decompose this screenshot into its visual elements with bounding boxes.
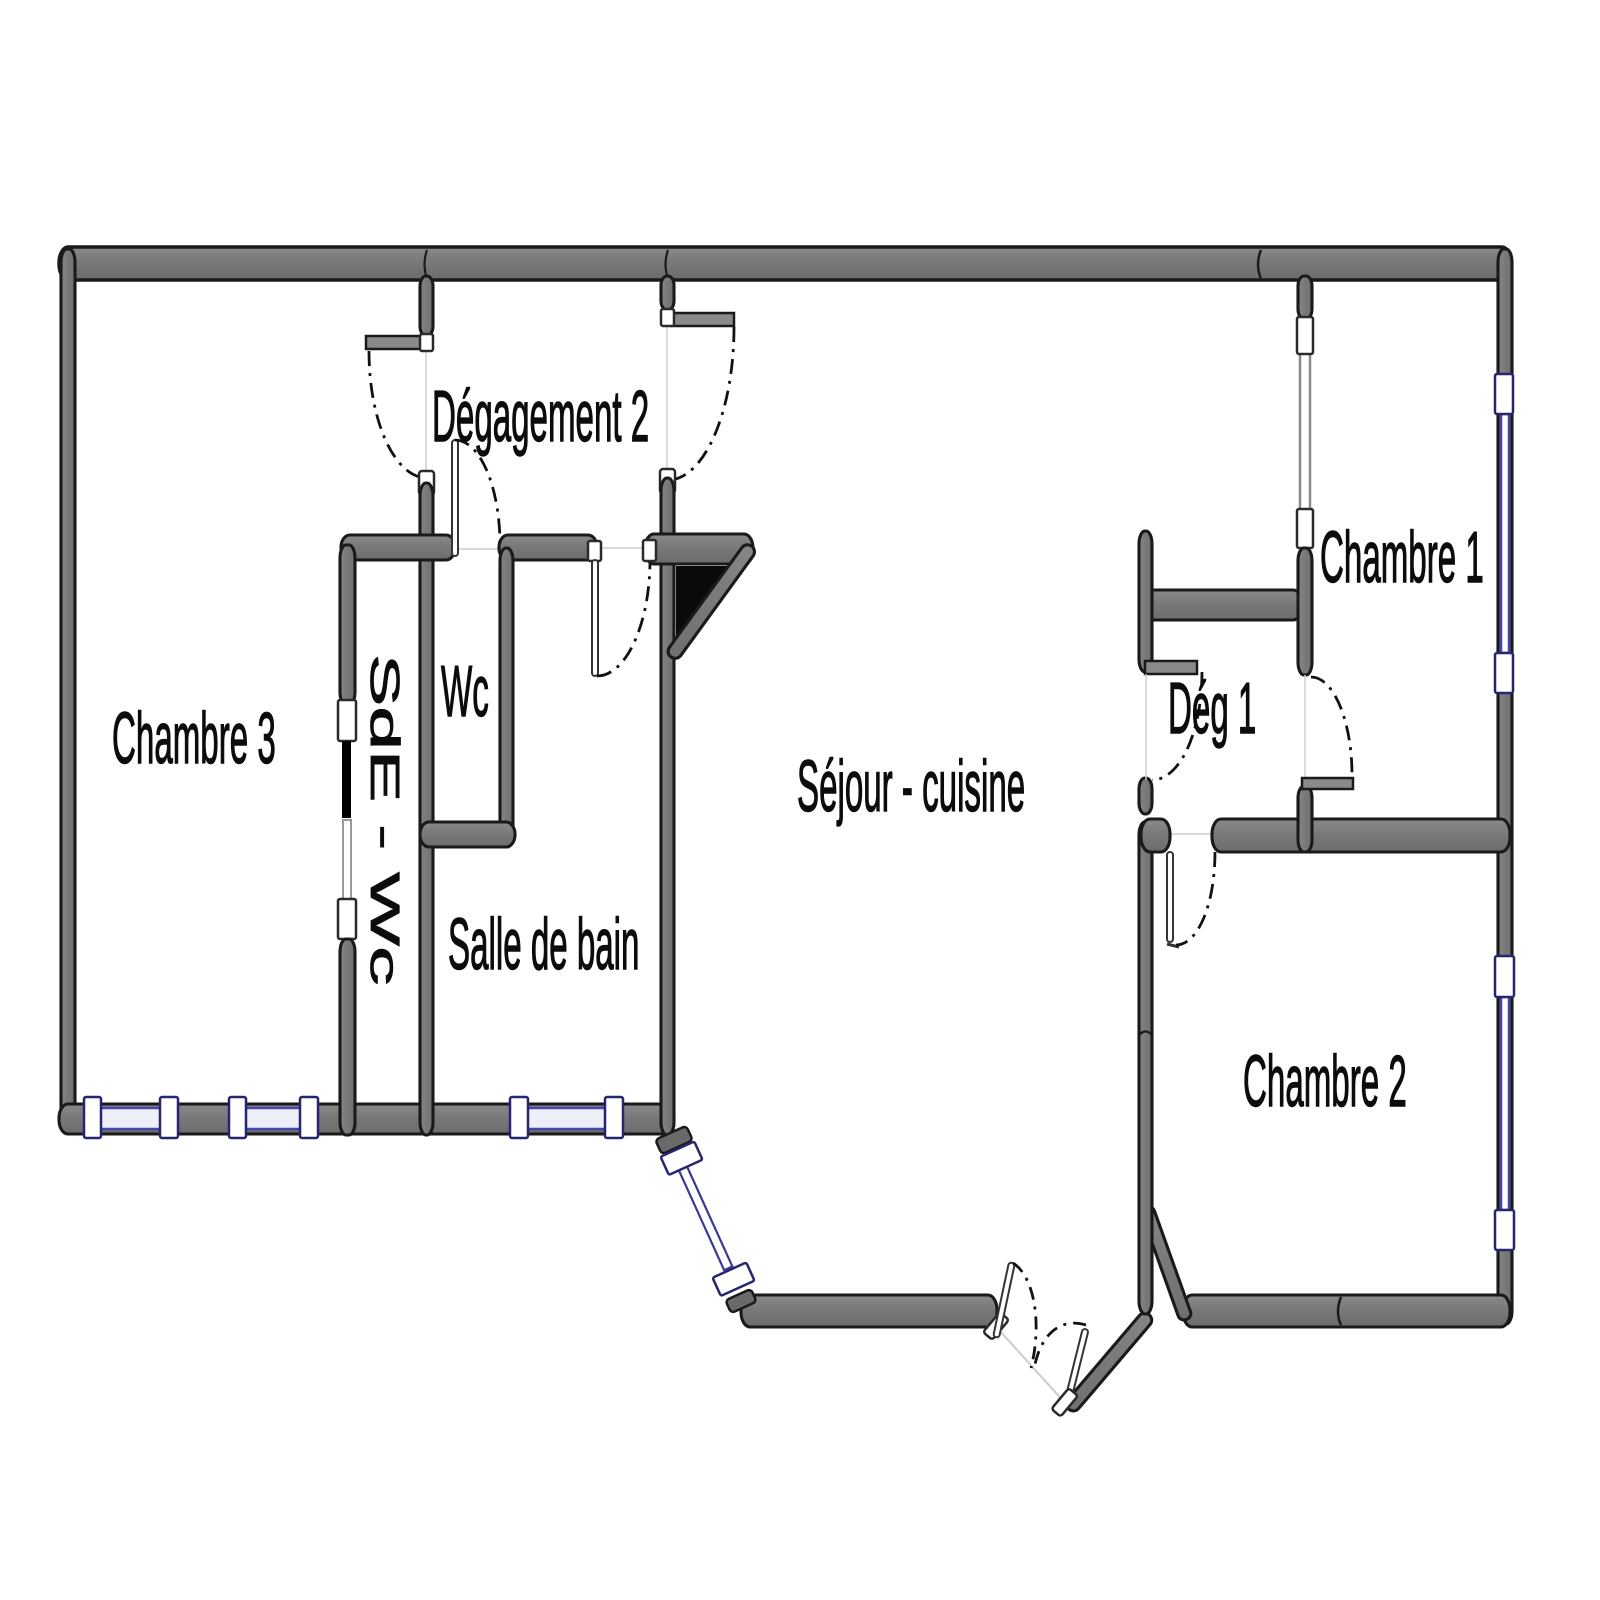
svg-text:Chambre 2: Chambre 2 xyxy=(1243,1040,1407,1121)
svg-text:Wc: Wc xyxy=(441,650,489,731)
svg-text:Salle de bain: Salle de bain xyxy=(448,903,639,984)
svg-text:Chambre 1: Chambre 1 xyxy=(1320,516,1484,597)
svg-text:Dégagement 2: Dégagement 2 xyxy=(432,375,649,456)
svg-text:SdE - Wc: SdE - Wc xyxy=(362,654,407,985)
svg-text:Séjour - cuisine: Séjour - cuisine xyxy=(797,745,1025,826)
svg-text:Dég 1: Dég 1 xyxy=(1168,667,1256,748)
svg-text:Chambre 3: Chambre 3 xyxy=(112,697,276,778)
